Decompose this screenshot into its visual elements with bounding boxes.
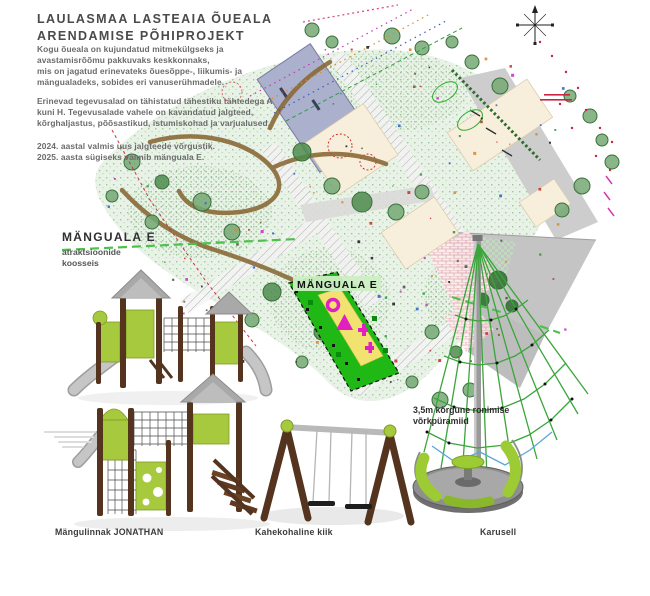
watermark-marks: [44, 428, 96, 451]
carousel-center-seat: [452, 456, 484, 469]
label-swing: Kahekohaline kiik: [255, 527, 333, 537]
intro-paragraph-3: 2024. aastal valmis uus jalgteede võrgus…: [37, 141, 287, 163]
label-playground: Mängulinnak JONATHAN: [55, 527, 163, 537]
carousel-bench-right: [506, 446, 516, 492]
net-bridge: [164, 318, 212, 352]
swing-cap-left: [281, 420, 293, 432]
project-poster: MÄNGUALA E: [0, 0, 650, 596]
pyramid-note: 3,5m kõrgune ronimise võrkpüramiid: [413, 405, 509, 427]
swing-seat-left: [308, 501, 335, 506]
label-carousel: Karusell: [480, 527, 516, 537]
net-bridge-lower: [134, 412, 188, 446]
carousel-bench-front: [448, 500, 490, 504]
area-callout-title: MÄNGUALA E: [62, 230, 156, 244]
area-callout: MÄNGUALA E atraktsioonide koosseis: [62, 230, 156, 269]
swing-set: [260, 420, 411, 525]
site-plan-graphics: MÄNGUALA E: [0, 0, 650, 596]
swing-seat-right: [345, 504, 372, 509]
stairs: [211, 460, 257, 514]
intro-paragraph-1: Kogu õueala on kujundatud mitmekülgseks …: [37, 44, 287, 88]
page-title: LAULASMAA LASTEAIA ÕUEALA ARENDAMISE PÕH…: [37, 11, 272, 45]
area-callout-subtitle: atraktsioonide koosseis: [62, 247, 156, 269]
intro-paragraph-2: Erinevad tegevusalad on tähistatud tähes…: [37, 96, 287, 129]
zone-label: MÄNGUALA E: [297, 278, 378, 291]
swing-cap-right: [384, 425, 396, 437]
swing-beam: [284, 427, 393, 433]
carousel: [413, 440, 523, 513]
swing-ropes: [313, 430, 366, 505]
north-arrow-icon: [516, 5, 554, 45]
